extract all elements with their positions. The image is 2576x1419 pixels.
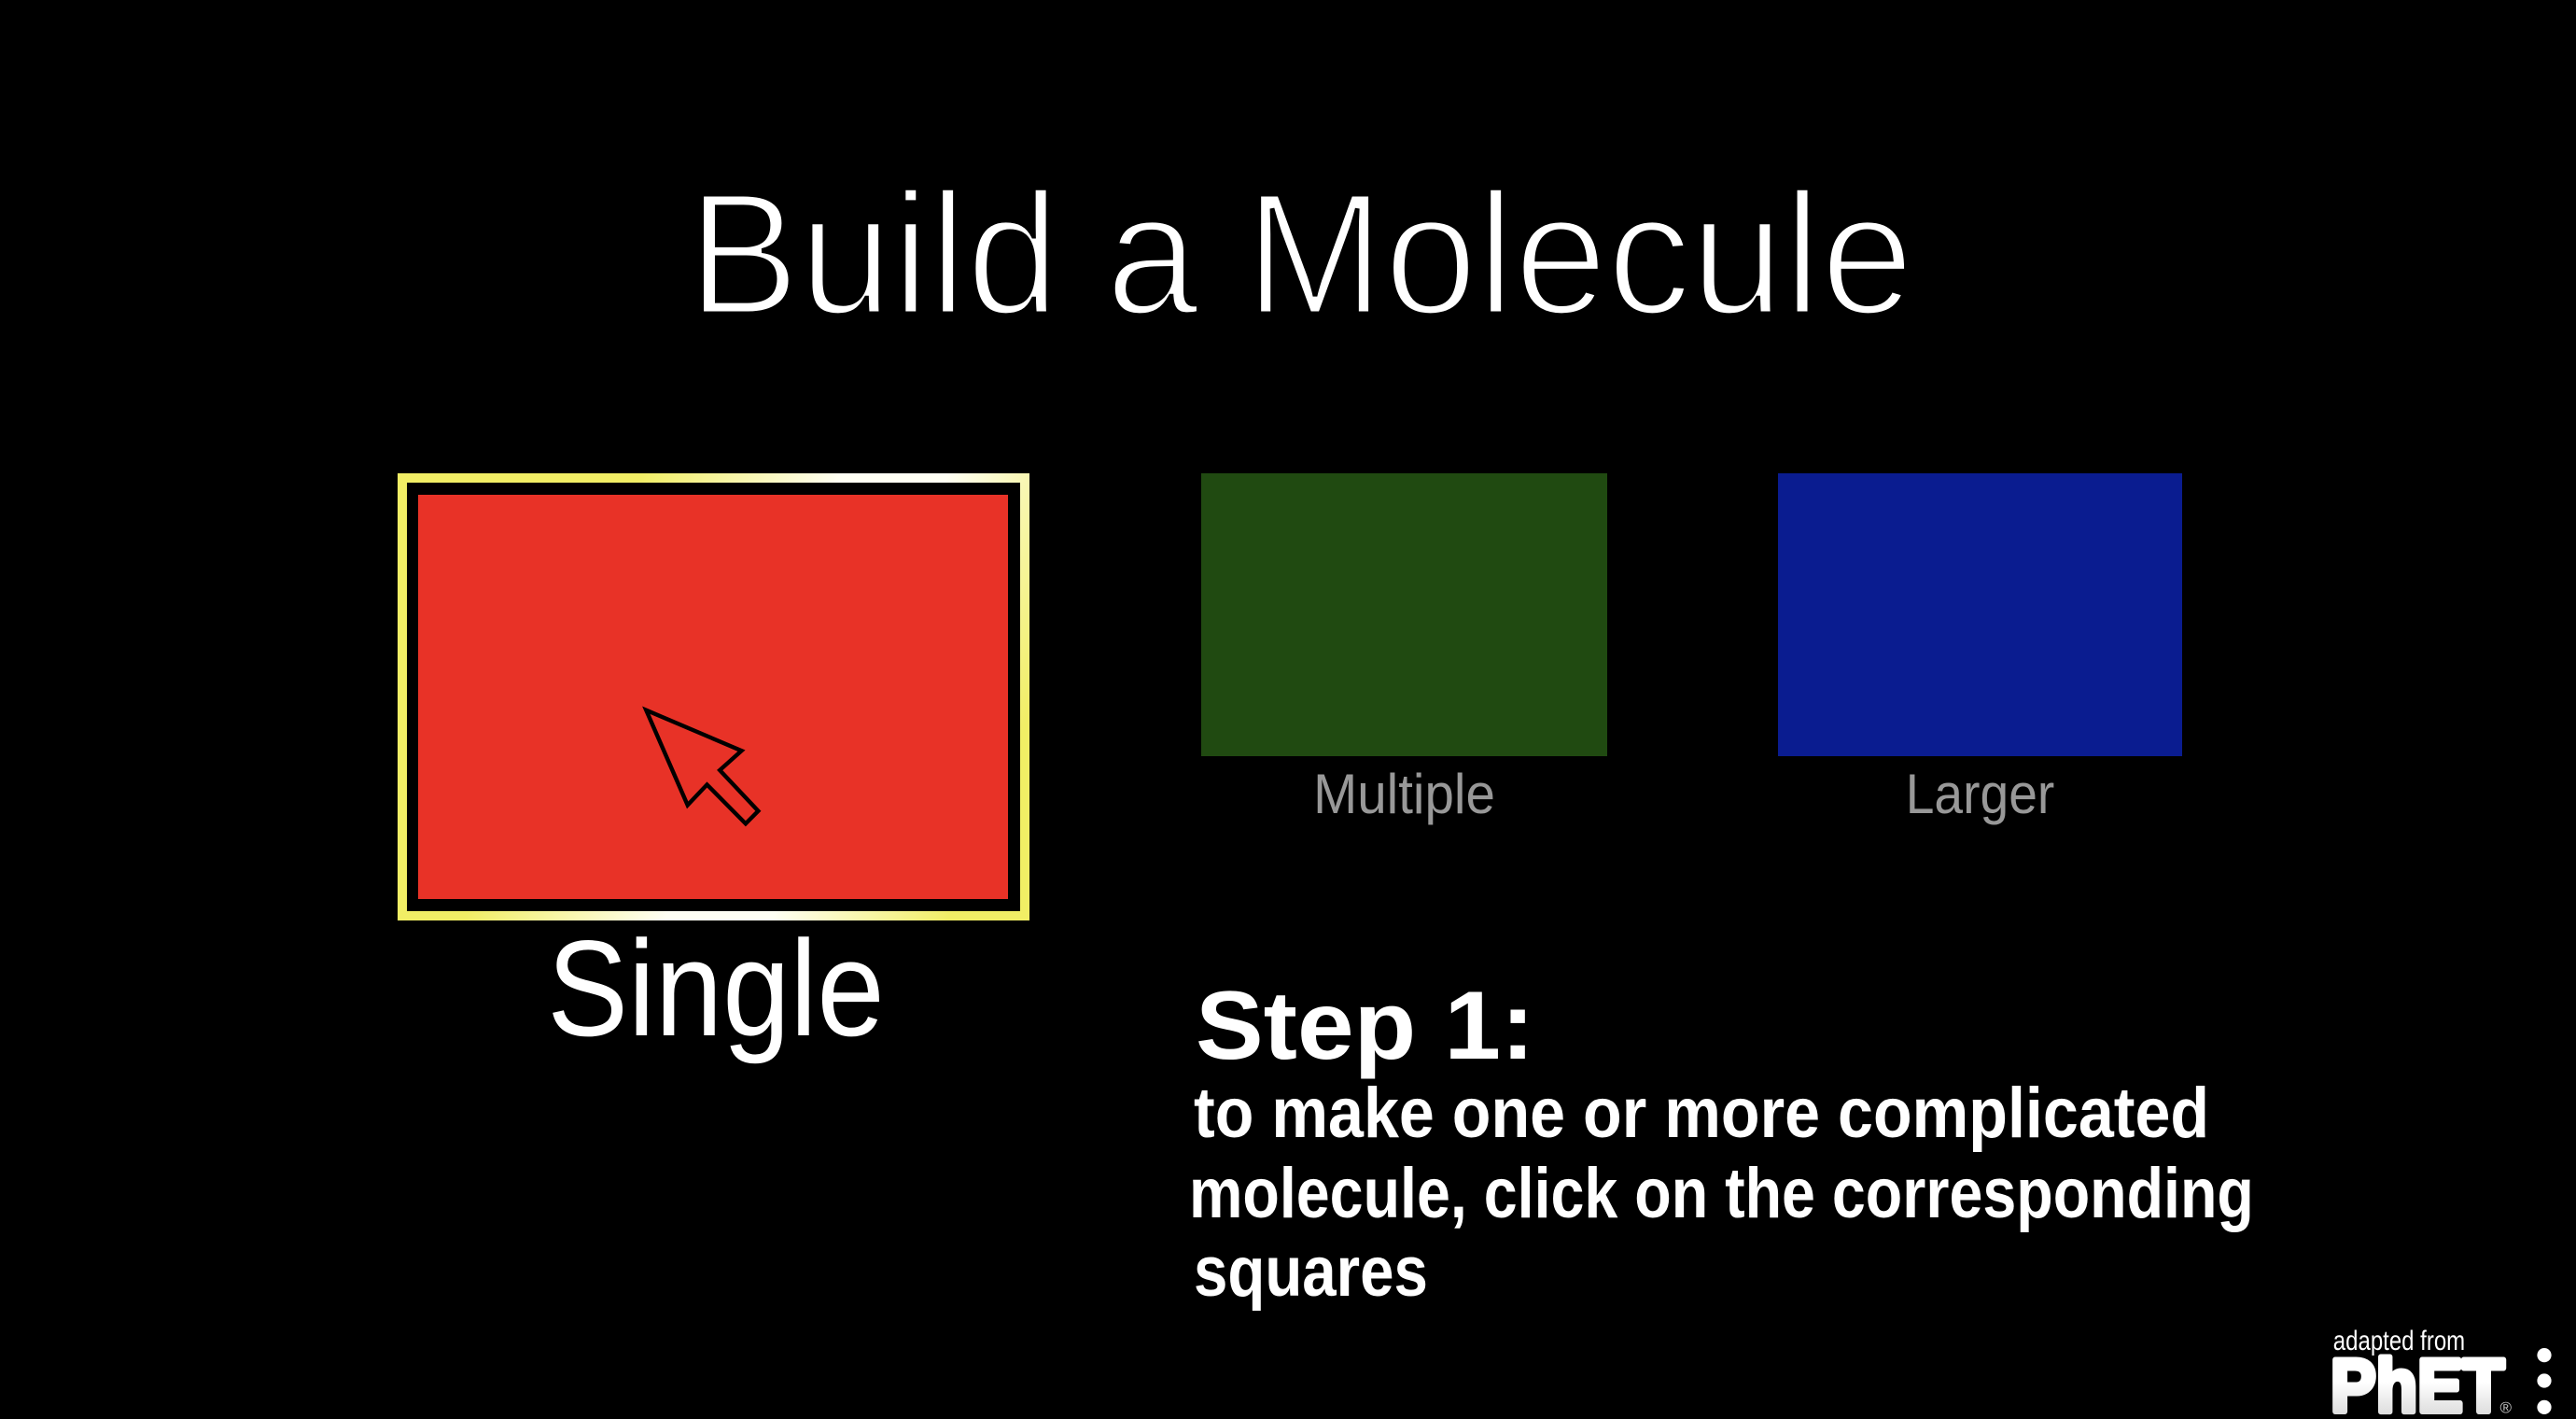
svg-text:®: ®	[2500, 1398, 2513, 1416]
svg-text:PhET: PhET	[2331, 1346, 2504, 1419]
